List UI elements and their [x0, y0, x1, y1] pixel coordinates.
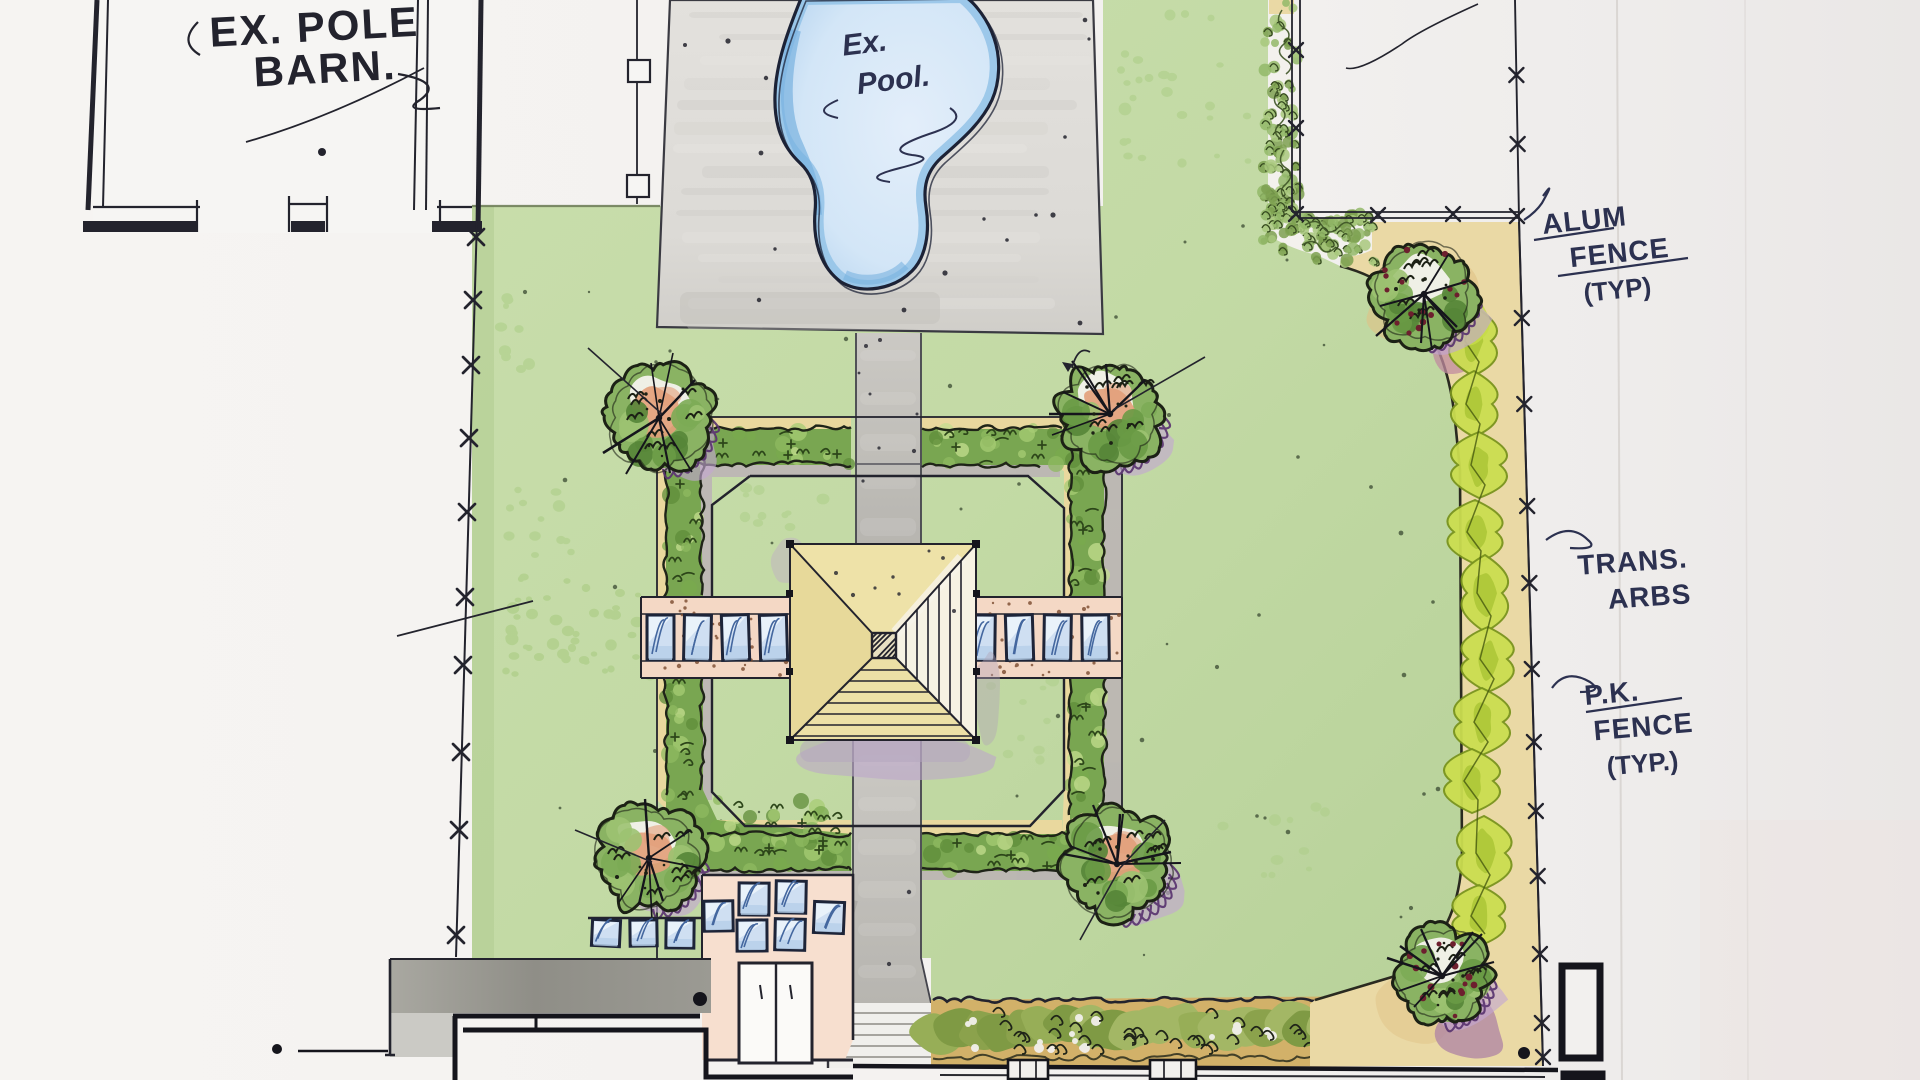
svg-text:BARN.: BARN.	[252, 41, 397, 95]
svg-text:ARBS: ARBS	[1607, 578, 1692, 615]
svg-text:(TYP.): (TYP.)	[1605, 745, 1679, 781]
svg-text:Ex.: Ex.	[840, 24, 889, 62]
